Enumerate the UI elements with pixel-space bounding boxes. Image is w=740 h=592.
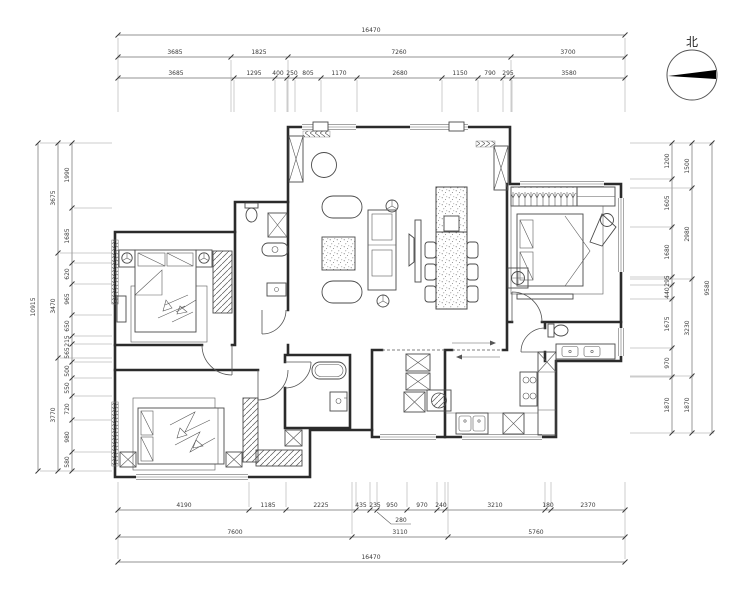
dim: 3675 [50,190,57,205]
dim: 7260 [391,49,406,56]
kitchen [445,352,556,435]
dining-chair [425,264,436,280]
window [618,328,625,356]
window [136,474,248,481]
floor-plan-drawing: 北 16470 3685 1825 7260 3700 3685 1295 40… [0,0,740,592]
bedroom-1 [117,250,232,342]
toilet [245,203,258,222]
dim: 3210 [487,502,502,509]
dim: 720 [64,403,71,415]
oval-coffee-table [322,281,362,303]
cabinet [406,354,430,371]
dim-top-overall: 16470 [361,27,380,34]
dim: 440 [664,287,671,299]
dim: 3700 [560,49,575,56]
dim: 1825 [251,49,266,56]
nightstand [196,250,212,267]
tv-cabinet [409,220,421,282]
shower [268,213,287,237]
dim: 3685 [168,70,183,77]
nightstand [120,452,136,467]
dim: 1685 [64,228,71,243]
window [520,181,604,188]
double-bed [138,408,224,464]
double-bed [511,206,603,294]
dim-right-overall: 9580 [704,280,711,295]
dim-bottom-overall: 16470 [361,554,380,561]
bathroom-2 [312,362,347,411]
sink [262,243,288,256]
dining-chair [425,242,436,258]
dim: 3685 [167,49,182,56]
dim: 565 [64,347,71,359]
cabinet [406,373,430,390]
radiator [112,240,118,304]
round-table [312,153,337,178]
dim: 240 [435,502,447,509]
cabinet [285,430,302,446]
dim: 4190 [176,502,191,509]
dim-leader: 280 [395,517,407,524]
tall-cabinet-column [538,352,556,435]
dim: 1680 [664,244,671,259]
dim: 1605 [664,195,671,210]
dim: 1500 [684,158,691,173]
cabinet-unit [289,131,330,182]
dim: 3470 [50,298,57,313]
dim: 3110 [392,529,407,536]
dining-chair [425,286,436,302]
dim: 235 [369,502,381,509]
dim: 2980 [684,226,691,241]
radiator [112,402,118,466]
dim: 3770 [50,407,57,422]
dim: 550 [64,382,71,394]
stove [520,372,537,406]
dim: 3230 [684,320,691,335]
dim: 1870 [684,397,691,412]
dining-chair [467,264,478,280]
dim: 1990 [64,167,71,182]
double-sink [456,413,488,434]
area-rug [322,237,355,270]
dim: 1870 [664,397,671,412]
dim: 1150 [452,70,467,77]
door-bedroom2 [258,370,288,400]
wall-pilaster [313,122,328,131]
side-table-fan [377,295,389,307]
cabinet [404,392,425,412]
dim: 1295 [246,70,261,77]
dimensions-left: 10915 3675 3470 3770 1990 1685 620 965 6… [30,141,112,474]
fridge [538,352,556,372]
dim: 7600 [227,529,242,536]
window [380,434,436,441]
north-needle-icon [668,70,716,79]
dim: 3580 [561,70,576,77]
dim: 790 [484,70,496,77]
dim: 650 [64,320,71,332]
dim: 400 [272,70,284,77]
dim: 250 [286,70,298,77]
floor-plan-page: 北 16470 3685 1825 7260 3700 3685 1295 40… [0,0,740,592]
wardrobe-shelf [577,187,615,206]
door-master-bath [521,328,545,352]
bathtub [312,362,346,379]
sofa [368,210,396,290]
sink [330,392,347,411]
dim: 980 [64,431,71,443]
dim: 295 [664,275,671,287]
oval-coffee-table [322,196,362,218]
toilet [548,324,568,337]
dim: 1185 [260,502,275,509]
wardrobe [213,251,232,313]
dim: 965 [64,293,71,305]
washbasin-cabinet [267,283,286,296]
window [618,198,625,272]
window [302,124,356,131]
wardrobe-hangers [511,187,577,206]
dim: 435 [355,502,367,509]
dim: 1170 [331,70,346,77]
door-bath2 [285,362,311,388]
dim: 2225 [313,502,328,509]
bedroom-2 [120,398,302,470]
closet [256,450,302,466]
double-vanity [556,344,615,359]
bathroom-1 [245,203,288,296]
dim: 215 [64,335,71,347]
dining-table [425,187,478,309]
living-dining-room [289,131,508,309]
dim: 970 [416,502,428,509]
prep-cabinet [503,413,524,434]
doors [202,292,545,400]
door-bath1 [262,310,286,334]
dim: 580 [64,456,71,468]
dim: 1200 [664,153,671,168]
dimensions-right: 9580 1500 2980 3230 1870 1200 1605 1680 … [630,141,715,436]
north-label: 北 [686,35,698,49]
dim: 2680 [392,70,407,77]
dining-chair [467,242,478,258]
wall-pilaster [449,122,464,131]
north-compass: 北 [667,35,717,100]
dim: 5760 [528,529,543,536]
dim: 295 [502,70,514,77]
dim: 950 [386,502,398,509]
double-bed [135,250,196,332]
window [462,434,542,441]
dim: 970 [664,357,671,369]
dim: 180 [542,502,554,509]
master-bathroom [548,324,615,359]
nightstand [226,452,242,467]
master-bedroom [508,187,616,299]
dim: 805 [302,70,314,77]
dim: 2370 [580,502,595,509]
nightstand [119,250,135,267]
door-master-bedroom [512,292,542,322]
dimensions-top: 16470 3685 1825 7260 3700 3685 1295 400 … [116,27,628,112]
dim: 1675 [664,316,671,331]
washing-machine [427,390,451,411]
dimensions-bottom: 4190 1185 2225 435 235 950 970 240 3210 … [116,482,628,565]
cabinet-unit [476,141,508,190]
dim-left-overall: 10915 [30,297,37,316]
dining-chair [467,286,478,302]
dim: 620 [64,268,71,280]
dim: 500 [64,365,71,377]
